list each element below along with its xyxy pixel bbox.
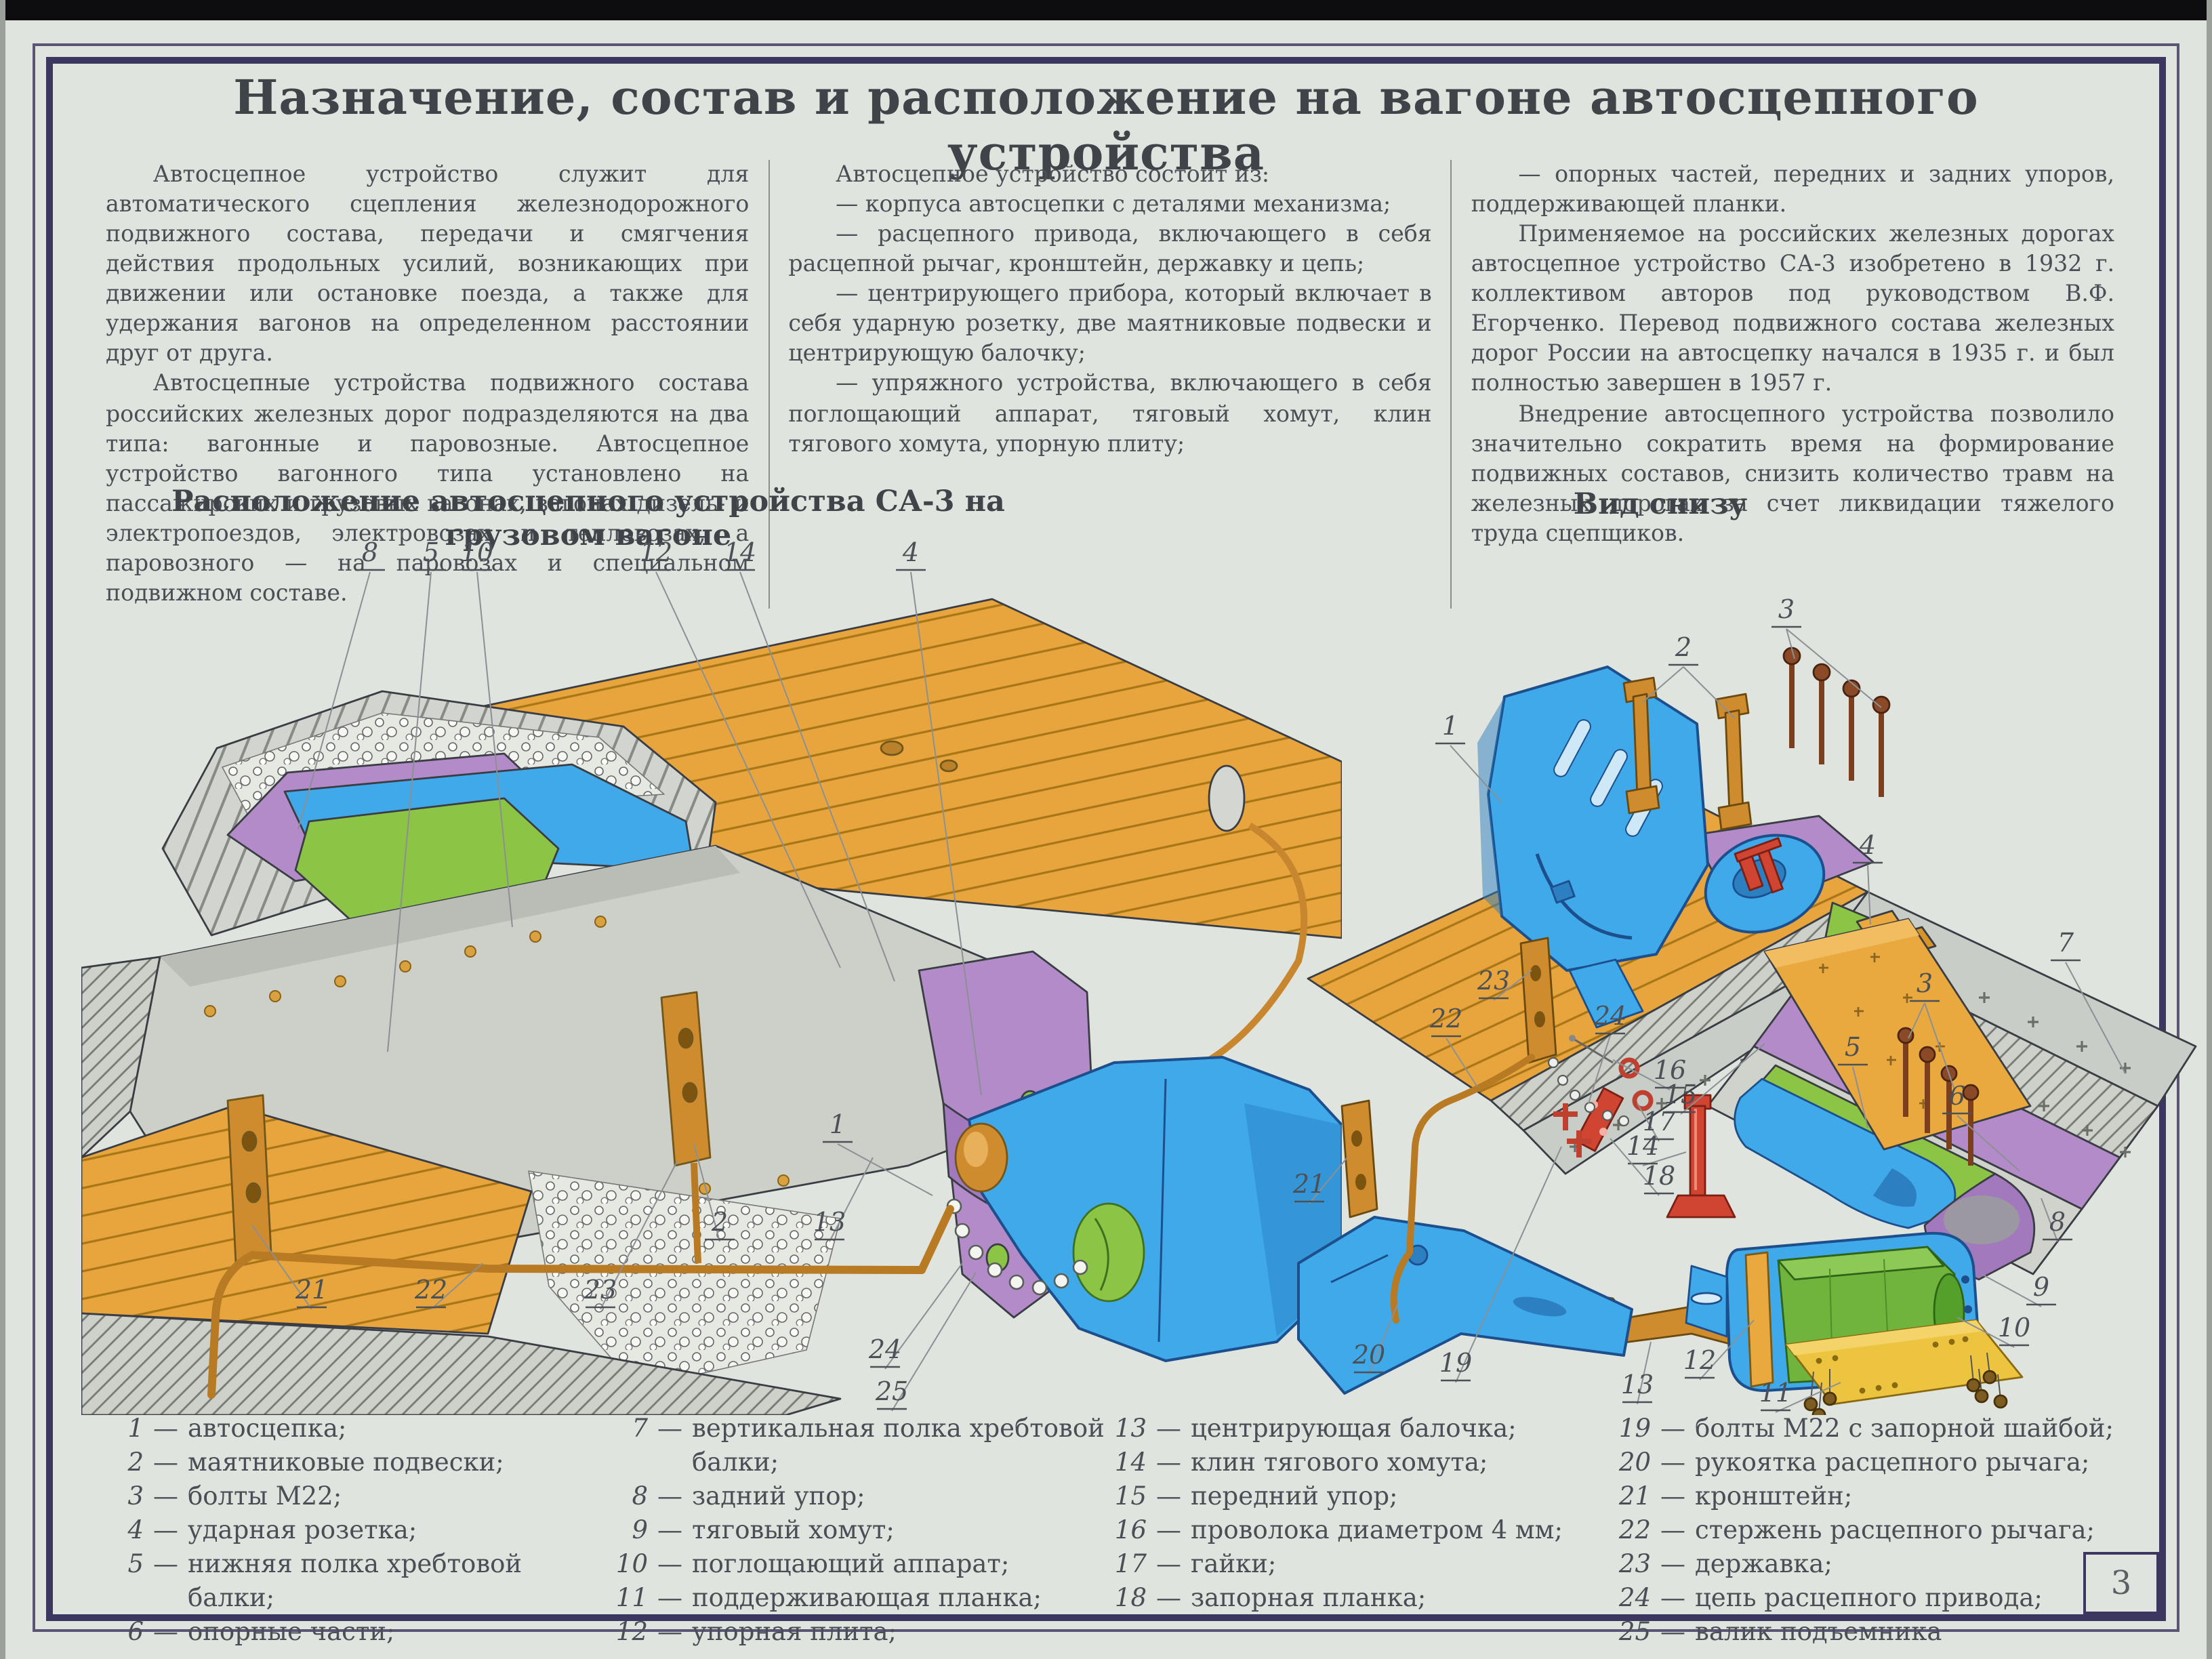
legend-item-text: клин тягового хомута; (1191, 1446, 1610, 1480)
legend-item-text: поглощающий аппарат; (692, 1548, 1106, 1582)
callout-number: 6 (1949, 1081, 1965, 1111)
paragraph: — расцепного привода, включающего в себя… (788, 220, 1431, 279)
callout-number: 2 (1675, 632, 1692, 662)
callout-number: 20 (1352, 1340, 1385, 1370)
legend-item-number: 9 (613, 1514, 648, 1548)
bracket (1342, 1101, 1377, 1217)
legend-item: 1—автосцепка; (108, 1412, 607, 1446)
photo-top-edge (0, 0, 2212, 20)
legend-item-number: 20 (1616, 1446, 1651, 1480)
legend-item-text: нижняя полка хребтовой балки; (188, 1548, 607, 1616)
callout-number: 13 (813, 1207, 846, 1237)
bottom-view-exploded-illustration: 1234356789101112131415161718192021222324 (1288, 520, 2198, 1415)
photo-right-edge (2207, 0, 2212, 1659)
poster-page: Назначение, состав и расположение на ваг… (0, 0, 2212, 1659)
callout-number: 10 (461, 537, 493, 567)
callout-number: 7 (2057, 928, 2074, 958)
legend-item: 3—болты М22; (108, 1480, 607, 1514)
legend-item: 19—болты М22 с запорной шайбой; (1616, 1412, 2160, 1446)
lever-bracket (228, 1095, 271, 1263)
callout-number: 21 (1292, 1169, 1326, 1199)
legend-item-text: опорные части; (188, 1616, 607, 1650)
legend-item-number: 3 (108, 1480, 144, 1514)
legend-item: 4—ударная розетка; (108, 1514, 607, 1548)
legend-item-text: задний упор; (692, 1480, 1106, 1514)
legend-item-number: 13 (1111, 1412, 1147, 1446)
legend-item: 10—поглощающий аппарат; (613, 1548, 1106, 1582)
legend-item-text: рукоятка расцепного рычага; (1695, 1446, 2160, 1480)
legend-item-text: кронштейн; (1695, 1480, 2160, 1514)
callout-number: 8 (2049, 1207, 2066, 1237)
legend-item: 7—вертикальная полка хребтовой балки; (613, 1412, 1106, 1480)
callout-number: 25 (875, 1376, 908, 1406)
legend-item-number: 4 (108, 1514, 144, 1548)
legend-item-text: ударная розетка; (188, 1514, 607, 1548)
legend-column-1: 1—автосцепка;2—маятниковые подвески;3—бо… (108, 1412, 607, 1650)
page-number-box: 3 (2083, 1552, 2159, 1614)
callout-number: 2 (711, 1207, 728, 1237)
legend-item: 8—задний упор; (613, 1480, 1106, 1514)
legend-item-text: тяговый хомут; (692, 1514, 1106, 1548)
callout-number: 8 (362, 537, 378, 567)
photo-left-edge (0, 0, 5, 1659)
legend-item-text: вертикальная полка хребтовой балки; (692, 1412, 1106, 1480)
callout-number: 11 (1759, 1378, 1792, 1408)
callout-number: 19 (1439, 1348, 1472, 1378)
legend-item-number: 10 (613, 1548, 648, 1582)
callout-number: 4 (902, 537, 919, 567)
right-diagram-heading: Вид снизу (1464, 488, 1857, 522)
legend-item: 21—кронштейн; (1616, 1480, 2160, 1514)
follower-plate (1746, 1252, 1773, 1387)
paragraph: — корпуса автосцепки с деталями механизм… (788, 190, 1431, 220)
paragraph: — опорных частей, передних и задних упор… (1471, 160, 2114, 220)
callout-number: 14 (724, 537, 756, 567)
legend-item-number: 23 (1616, 1548, 1651, 1582)
legend-item: 24—цепь расцепного привода; (1616, 1582, 2160, 1616)
paragraph: — центрирующего прибора, который включае… (788, 280, 1431, 369)
callout-number: 1 (1442, 711, 1458, 741)
legend-item-text: проволока диаметром 4 мм; (1191, 1514, 1610, 1548)
callout-number: 12 (640, 537, 672, 567)
paragraph: Автосцепное устройство служит для автома… (106, 160, 749, 369)
legend-item: 14—клин тягового хомута; (1111, 1446, 1610, 1480)
legend-item: 17—гайки; (1111, 1548, 1610, 1582)
legend-item-number: 18 (1111, 1582, 1147, 1616)
callout-number: 5 (423, 537, 439, 567)
legend-item-number: 6 (108, 1616, 144, 1650)
legend-item-text: центрирующая балочка; (1191, 1412, 1610, 1446)
legend-item-text: стержень расцепного рычага; (1695, 1514, 2160, 1548)
paragraph: — упряжного устройства, включающего в се… (788, 369, 1431, 459)
callout-number: 17 (1643, 1107, 1676, 1136)
callout-number: 3 (1917, 968, 1933, 998)
paragraph: Автосцепное устройство состоит из: (788, 160, 1431, 190)
legend-column-3: 13—центрирующая балочка;14—клин тягового… (1111, 1412, 1610, 1650)
legend-item-text: валик подъемника (1695, 1616, 2160, 1650)
legend-item-text: болты М22; (188, 1480, 607, 1514)
legend-column-4: 19—болты М22 с запорной шайбой;20—рукоят… (1616, 1412, 2160, 1650)
legend-item: 25—валик подъемника (1616, 1616, 2160, 1650)
callout-number: 9 (2033, 1272, 2049, 1302)
legend-item-number: 2 (108, 1446, 144, 1480)
paragraph: Применяемое на российских железных дорог… (1471, 220, 2114, 399)
deck-bracket (1209, 766, 1244, 831)
callout-number: 4 (1859, 830, 1876, 860)
legend-item-number: 8 (613, 1480, 648, 1514)
callout-number: 10 (1998, 1313, 2030, 1343)
legend-item-text: болты М22 с запорной шайбой; (1695, 1412, 2160, 1446)
callout-number: 23 (583, 1275, 617, 1305)
legend-item-number: 22 (1616, 1514, 1651, 1548)
legend-item: 18—запорная планка; (1111, 1582, 1610, 1616)
legend-item-number: 1 (108, 1412, 144, 1446)
legend-item-number: 14 (1111, 1446, 1147, 1480)
callout-number: 24 (1593, 1001, 1626, 1031)
legend-item: 13—центрирующая балочка; (1111, 1412, 1610, 1446)
callout-number: 24 (868, 1334, 901, 1364)
legend-item-number: 15 (1111, 1480, 1147, 1514)
legend-item-number: 12 (613, 1616, 648, 1650)
legend-item-text: гайки; (1191, 1548, 1610, 1582)
legend: 1—автосцепка;2—маятниковые подвески;3—бо… (108, 1412, 2160, 1650)
legend-item: 6—опорные части; (108, 1616, 607, 1650)
legend-item: 2—маятниковые подвески; (108, 1446, 607, 1480)
callout-leader-line (1683, 667, 1735, 718)
legend-item-number: 11 (613, 1582, 648, 1616)
callout-number: 22 (414, 1275, 447, 1305)
callout-number: 5 (1845, 1032, 1861, 1062)
page-number: 3 (2111, 1564, 2132, 1602)
legend-item-number: 21 (1616, 1480, 1651, 1514)
legend-item: 9—тяговый хомут; (613, 1514, 1106, 1548)
legend-item-text: запорная планка; (1191, 1582, 1610, 1616)
callout-number: 16 (1654, 1055, 1686, 1085)
legend-item-text: упорная плита; (692, 1616, 1106, 1650)
legend-item: 16—проволока диаметром 4 мм; (1111, 1514, 1610, 1548)
callout-leader-line (1786, 629, 1881, 708)
callout-number: 22 (1429, 1004, 1462, 1033)
freight-car-cutaway-illustration: 85101214412132425212223 (81, 520, 1342, 1415)
legend-item-number: 25 (1616, 1616, 1651, 1650)
legend-item-number: 16 (1111, 1514, 1147, 1548)
legend-item: 20—рукоятка расцепного рычага; (1616, 1446, 2160, 1480)
legend-item: 12—упорная плита; (613, 1616, 1106, 1650)
legend-item: 15—передний упор; (1111, 1480, 1610, 1514)
legend-item-text: поддерживающая планка; (692, 1582, 1106, 1616)
legend-item: 23—державка; (1616, 1548, 2160, 1582)
legend-item: 11—поддерживающая планка; (613, 1582, 1106, 1616)
callout-number: 1 (829, 1109, 846, 1139)
legend-item-text: автосцепка; (188, 1412, 607, 1446)
callout-number: 12 (1683, 1345, 1716, 1375)
cutaway-art (81, 599, 1342, 1415)
callout-number: 3 (1778, 594, 1795, 624)
legend-item-number: 24 (1616, 1582, 1651, 1616)
legend-item-text: маятниковые подвески; (188, 1446, 607, 1480)
callout-number: 13 (1621, 1370, 1654, 1399)
callout-leader-line (1982, 1274, 2041, 1307)
legend-item-number: 17 (1111, 1548, 1147, 1582)
legend-item-number: 7 (613, 1412, 648, 1480)
legend-item-number: 5 (108, 1548, 144, 1616)
legend-item-text: передний упор; (1191, 1480, 1610, 1514)
legend-column-2: 7—вертикальная полка хребтовой балки;8—з… (613, 1412, 1106, 1650)
legend-item: 5—нижняя полка хребтовой балки; (108, 1548, 607, 1616)
callout-number: 21 (295, 1275, 328, 1305)
legend-item-number: 19 (1616, 1412, 1651, 1446)
callout-number: 18 (1643, 1161, 1675, 1191)
poster-photo: Назначение, состав и расположение на ваг… (0, 0, 2212, 1659)
legend-item: 22—стержень расцепного рычага; (1616, 1514, 2160, 1548)
callout-number: 23 (1477, 966, 1510, 996)
